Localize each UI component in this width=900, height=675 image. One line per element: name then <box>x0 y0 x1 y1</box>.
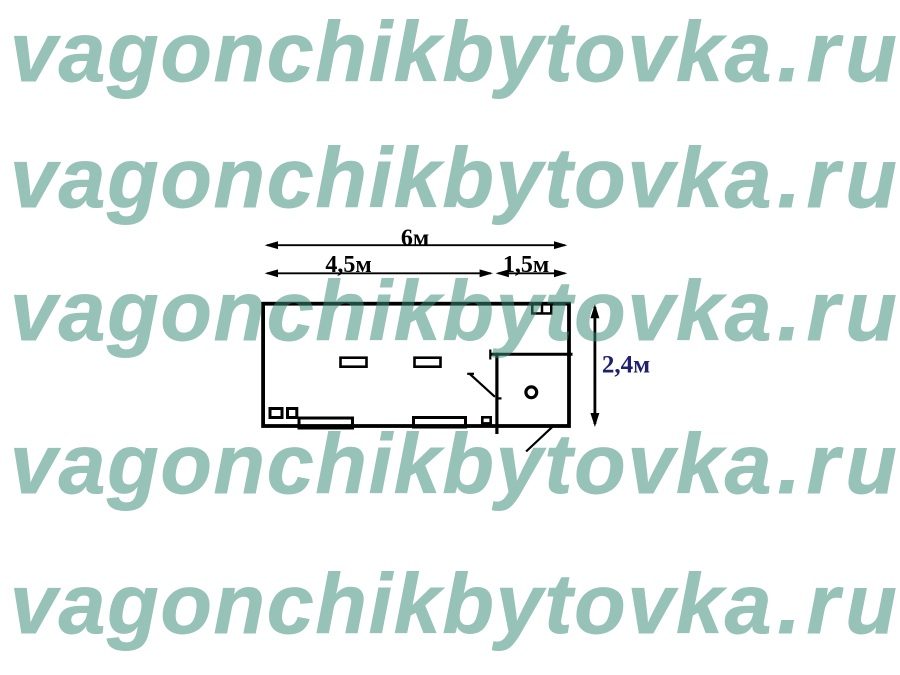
svg-text:6м: 6м <box>401 226 429 252</box>
